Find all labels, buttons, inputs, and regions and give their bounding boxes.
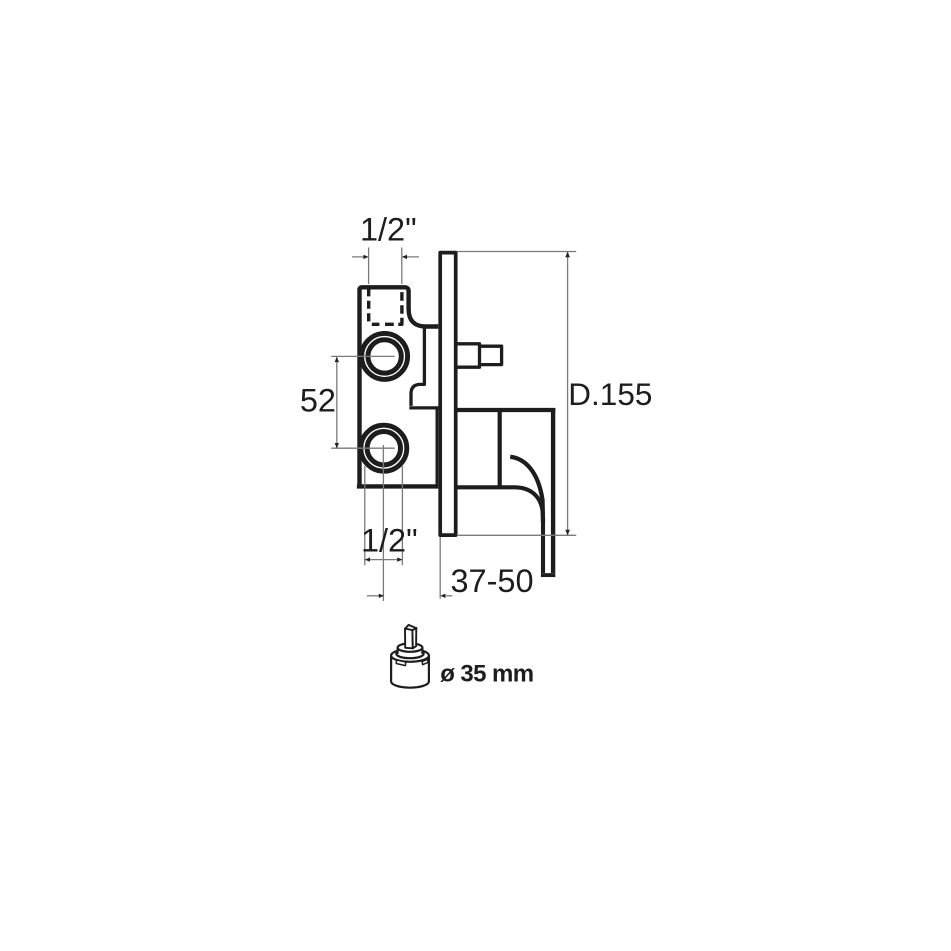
svg-text:1/2": 1/2" — [360, 212, 417, 248]
svg-text:37-50: 37-50 — [450, 563, 533, 599]
svg-text:52: 52 — [300, 382, 336, 418]
svg-text:1/2": 1/2" — [361, 522, 418, 558]
svg-text:ø 35 mm: ø 35 mm — [440, 661, 533, 688]
svg-text:D.155: D.155 — [568, 376, 652, 412]
